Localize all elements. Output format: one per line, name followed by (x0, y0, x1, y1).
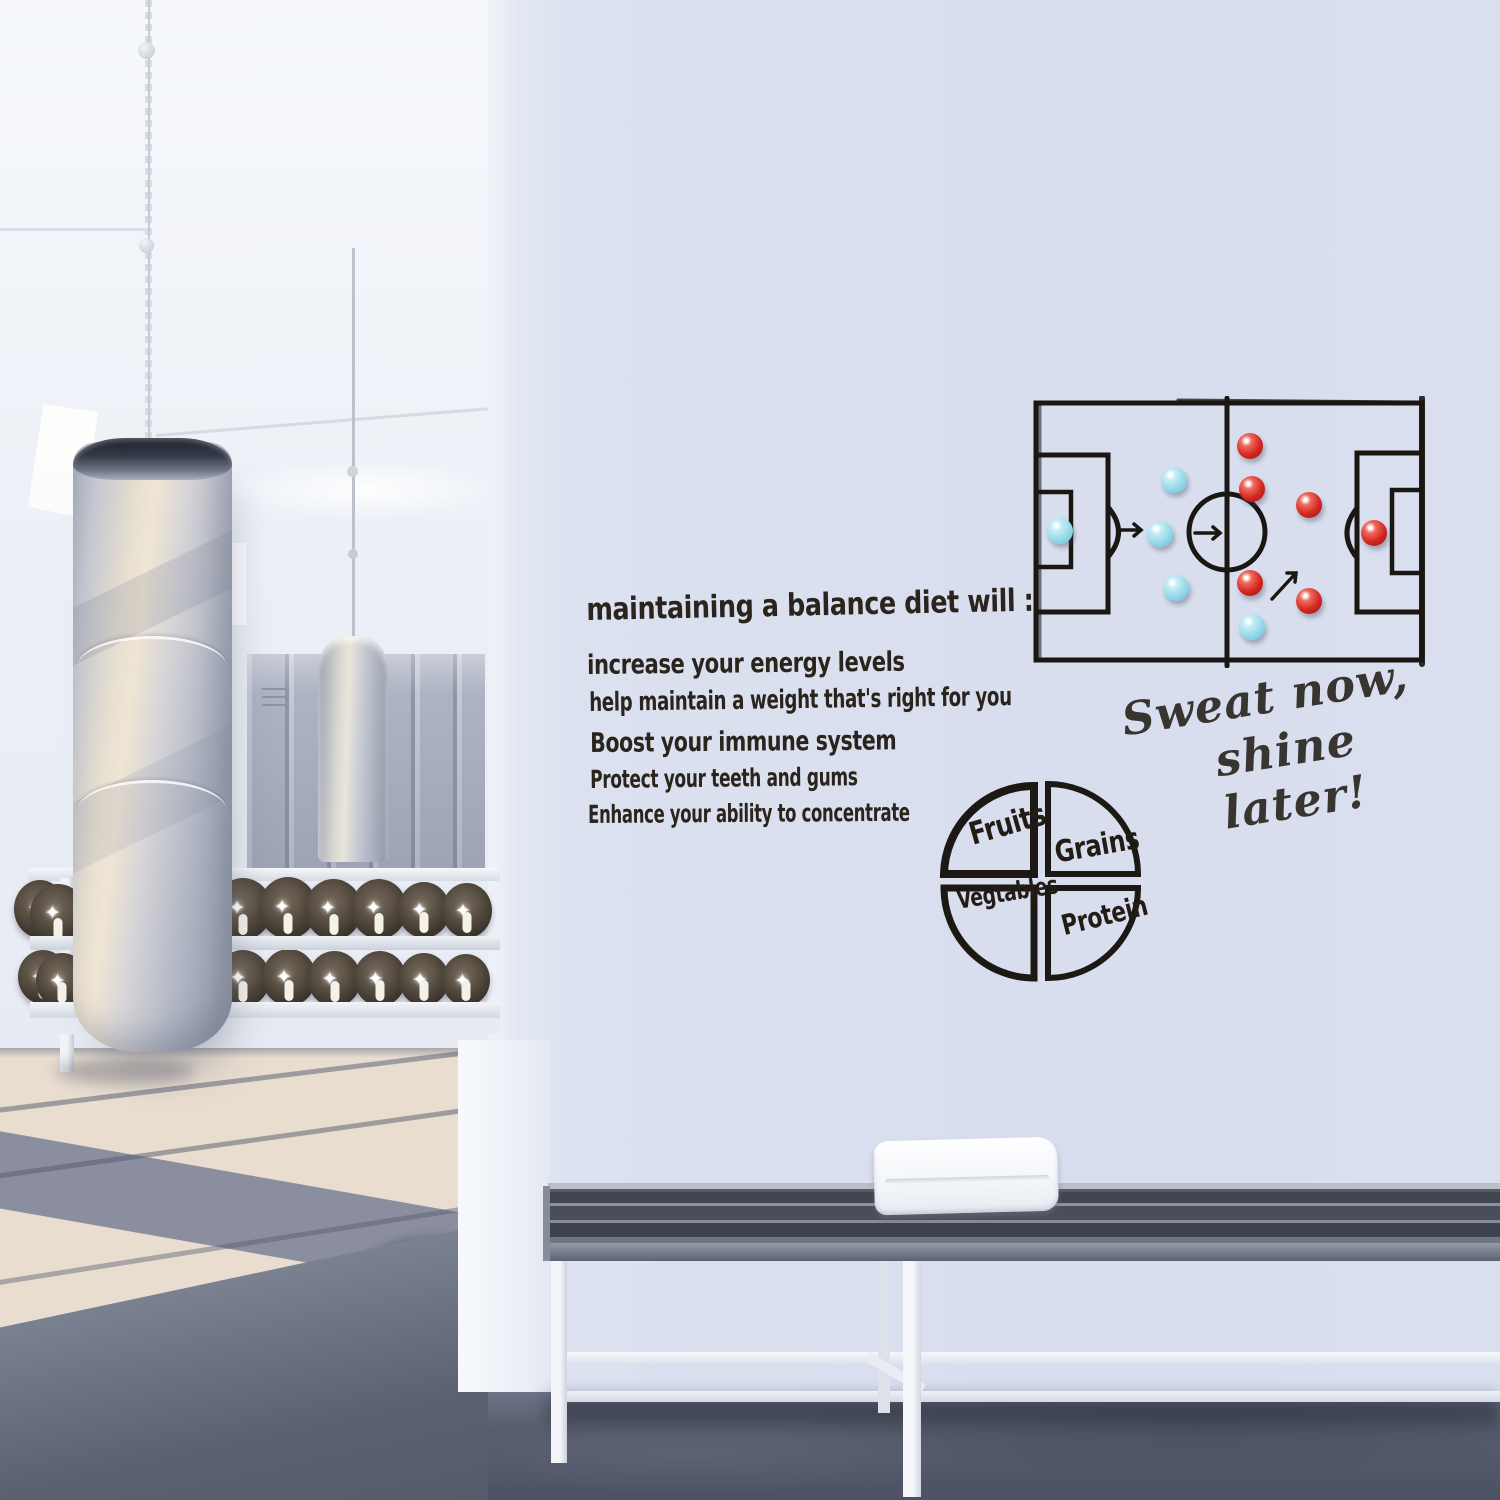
note-line: Protect your teeth and gums (590, 762, 858, 794)
magnet-red (1237, 433, 1263, 459)
bench-end-cap (543, 1186, 550, 1261)
magnet-blue (1161, 467, 1187, 493)
bench-lower-rail (560, 1391, 1500, 1402)
magnet-red (1361, 520, 1387, 546)
note-line: Enhance your ability to concentrate (588, 798, 910, 829)
magnet-red (1239, 476, 1265, 502)
gym-floor (0, 1048, 492, 1500)
bench-leg (551, 1261, 567, 1463)
gym-locker-room-scene: maintaining a balance diet will : increa… (0, 0, 1500, 1500)
room-corner-line (0, 228, 152, 231)
punching-bag-cap (73, 438, 232, 480)
punching-bag-shadow (55, 1058, 195, 1084)
magnet-red (1237, 570, 1263, 596)
note-line: help maintain a weight that's right for … (589, 682, 1012, 718)
bench-leg (903, 1261, 921, 1497)
punching-bag (73, 442, 232, 1052)
magnet-blue (1239, 614, 1265, 640)
mirrored-bag-cord (352, 248, 355, 640)
bench-seat-edge (548, 1243, 1500, 1261)
note-line: Boost your immune system (590, 725, 896, 759)
dumbbell (442, 954, 490, 1006)
magnet-red (1296, 492, 1322, 518)
mirrored-punching-bag (318, 636, 388, 862)
cord-knob (348, 549, 358, 559)
bench-lower-rail (560, 1352, 1500, 1364)
note-line: increase your energy levels (587, 647, 905, 681)
locker-vent-slits (262, 688, 289, 712)
wall-corner-edge (458, 1040, 550, 1392)
cord-knob (347, 466, 358, 477)
chain-connector (139, 238, 154, 253)
bench-leg (878, 1261, 890, 1413)
mirror-light-glow (230, 460, 500, 520)
folded-towel (873, 1137, 1059, 1216)
hanging-chain (148, 0, 150, 448)
dumbbell (442, 883, 492, 938)
magnet-blue (1047, 518, 1073, 544)
chain-connector (138, 42, 155, 59)
magnet-blue (1163, 575, 1189, 601)
magnet-red (1296, 588, 1322, 614)
magnet-blue (1147, 521, 1173, 547)
